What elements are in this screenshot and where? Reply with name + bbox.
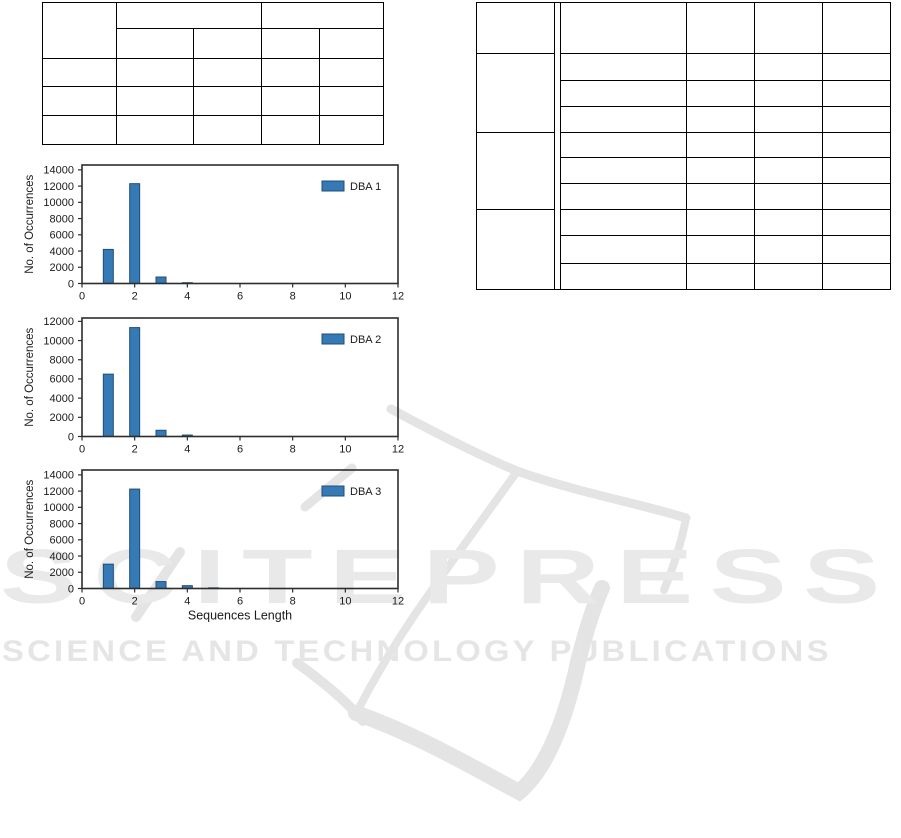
- y-tick-label: 12000: [43, 486, 74, 498]
- x-tick-label: 4: [184, 444, 190, 456]
- empty-table-cell: [687, 184, 755, 210]
- y-tick-label: 0: [68, 431, 74, 443]
- x-tick-label: 0: [79, 596, 85, 608]
- y-tick-label: 4000: [50, 393, 74, 405]
- y-tick-label: 0: [68, 583, 74, 595]
- empty-table-cell: [823, 158, 891, 184]
- empty-table-cell: [117, 87, 194, 116]
- empty-table-cell: [561, 54, 687, 81]
- empty-table-cell: [262, 116, 320, 145]
- empty-table-cell: [823, 81, 891, 107]
- empty-table-cell: [262, 59, 320, 87]
- y-tick-label: 14000: [43, 470, 74, 482]
- legend-swatch: [322, 181, 344, 191]
- bars-dba2: [103, 328, 192, 437]
- bars-dba1: [103, 184, 192, 284]
- empty-table-cell: [561, 3, 687, 54]
- y-tick-label: 12000: [43, 316, 74, 328]
- x-tick-label: 10: [339, 291, 351, 303]
- empty-table-cell: [755, 81, 823, 107]
- y-tick-label: 2000: [50, 262, 74, 274]
- empty-table-cell: [755, 107, 823, 133]
- x-tick-label: 8: [290, 444, 296, 456]
- x-tick-label: 2: [132, 291, 138, 303]
- y-tick-label: 8000: [50, 213, 74, 225]
- empty-table-cell: [755, 236, 823, 264]
- empty-table-cell: [477, 54, 555, 133]
- x-tick-label: 12: [392, 291, 404, 303]
- bar: [130, 184, 140, 284]
- empty-table-cell: [755, 210, 823, 236]
- empty-table-cell: [117, 29, 194, 59]
- empty-table-cell: [561, 81, 687, 107]
- x-tick-label: 2: [132, 596, 138, 608]
- empty-table-cell: [823, 264, 891, 290]
- empty-table-cell: [823, 133, 891, 158]
- y-tick-label: 2000: [50, 567, 74, 579]
- legend-swatch: [322, 486, 344, 496]
- empty-table-cell: [320, 59, 384, 87]
- x-tick-label: 4: [184, 291, 190, 303]
- y-tick-label: 4000: [50, 551, 74, 563]
- empty-table-cell: [687, 264, 755, 290]
- empty-table-cell: [823, 236, 891, 264]
- bar: [156, 277, 166, 283]
- empty-table-cell: [561, 210, 687, 236]
- bar: [130, 489, 140, 588]
- y-axis-label: No. of Occurrences: [24, 479, 36, 578]
- empty-table-cell: [755, 133, 823, 158]
- x-tick-label: 10: [339, 596, 351, 608]
- empty-table-cell: [561, 264, 687, 290]
- empty-table-cell: [561, 158, 687, 184]
- empty-table-cell: [194, 29, 262, 59]
- empty-table-cell: [43, 3, 117, 59]
- empty-table-cell: [687, 133, 755, 158]
- empty-table-cell: [561, 236, 687, 264]
- x-tick-label: 6: [237, 291, 243, 303]
- empty-table-cell: [687, 107, 755, 133]
- x-axis-label: Sequences Length: [188, 609, 292, 623]
- y-tick-label: 10000: [43, 335, 74, 347]
- empty-table-cell: [823, 54, 891, 81]
- empty-table-cell: [823, 3, 891, 54]
- empty-table-cell: [43, 59, 117, 87]
- x-tick-label: 0: [79, 291, 85, 303]
- empty-table-cell: [755, 54, 823, 81]
- y-tick-label: 14000: [43, 165, 74, 177]
- legend-label: DBA 1: [350, 181, 381, 193]
- empty-table-cell: [320, 116, 384, 145]
- x-tick-label: 6: [237, 596, 243, 608]
- y-axis-label: No. of Occurrences: [24, 327, 36, 426]
- y-tick-label: 10000: [43, 197, 74, 209]
- bar: [156, 582, 166, 589]
- empty-table-cell: [117, 59, 194, 87]
- empty-table-cell: [43, 87, 117, 116]
- bar: [103, 374, 113, 436]
- x-tick-label: 12: [392, 444, 404, 456]
- y-tick-label: 12000: [43, 181, 74, 193]
- empty-table-cell: [320, 29, 384, 59]
- x-tick-label: 4: [184, 596, 190, 608]
- empty-table-cell: [117, 116, 194, 145]
- legend-label: DBA 3: [350, 486, 381, 498]
- empty-table-cell: [755, 184, 823, 210]
- x-tick-label: 0: [79, 444, 85, 456]
- empty-table-cell: [687, 236, 755, 264]
- bars-dba3: [103, 489, 218, 588]
- y-tick-label: 6000: [50, 535, 74, 547]
- empty-table-cell: [262, 29, 320, 59]
- empty-table-cell: [117, 3, 262, 29]
- top-right-table: [476, 2, 891, 290]
- empty-table-cell: [755, 158, 823, 184]
- legend-swatch: [322, 334, 344, 344]
- empty-table-cell: [687, 81, 755, 107]
- histogram-dba-2: 020004000600080001000012000024681012No. …: [20, 311, 410, 461]
- y-tick-label: 10000: [43, 502, 74, 514]
- x-tick-label: 8: [290, 596, 296, 608]
- empty-table-cell: [687, 3, 755, 54]
- y-tick-label: 4000: [50, 246, 74, 258]
- empty-table-cell: [194, 116, 262, 145]
- x-tick-label: 2: [132, 444, 138, 456]
- empty-table-cell: [687, 54, 755, 81]
- empty-table-cell: [262, 3, 384, 29]
- x-tick-label: 10: [339, 444, 351, 456]
- y-tick-label: 8000: [50, 518, 74, 530]
- empty-table-cell: [823, 107, 891, 133]
- empty-table-cell: [477, 210, 555, 290]
- empty-table-cell: [477, 3, 555, 54]
- empty-table-cell: [43, 116, 117, 145]
- y-tick-label: 8000: [50, 355, 74, 367]
- legend-label: DBA 2: [350, 334, 381, 346]
- x-tick-label: 6: [237, 444, 243, 456]
- empty-table-cell: [755, 3, 823, 54]
- y-tick-label: 6000: [50, 374, 74, 386]
- empty-table-cell: [194, 87, 262, 116]
- empty-table-cell: [755, 264, 823, 290]
- y-tick-label: 6000: [50, 230, 74, 242]
- y-axis-label: No. of Occurrences: [24, 174, 36, 273]
- empty-table-cell: [561, 184, 687, 210]
- empty-table-cell: [561, 133, 687, 158]
- top-left-table: [42, 2, 384, 145]
- bar: [156, 430, 166, 436]
- empty-table-cell: [823, 210, 891, 236]
- empty-table-cell: [687, 158, 755, 184]
- empty-table-cell: [320, 87, 384, 116]
- histogram-dba-1: 0200040006000800010000120001400002468101…: [20, 158, 410, 308]
- bar: [130, 328, 140, 437]
- x-tick-label: 12: [392, 596, 404, 608]
- empty-table-cell: [262, 87, 320, 116]
- x-tick-label: 8: [290, 291, 296, 303]
- empty-table-cell: [687, 210, 755, 236]
- bar: [103, 249, 113, 283]
- empty-table-cell: [561, 107, 687, 133]
- histogram-dba-3: 0200040006000800010000120001400002468101…: [20, 463, 410, 633]
- empty-table-cell: [823, 184, 891, 210]
- empty-table-cell: [477, 133, 555, 210]
- y-tick-label: 2000: [50, 412, 74, 424]
- empty-table-cell: [194, 59, 262, 87]
- paper-page: 0200040006000800010000120001400002468101…: [0, 0, 901, 833]
- y-tick-label: 0: [68, 278, 74, 290]
- bar: [103, 564, 113, 588]
